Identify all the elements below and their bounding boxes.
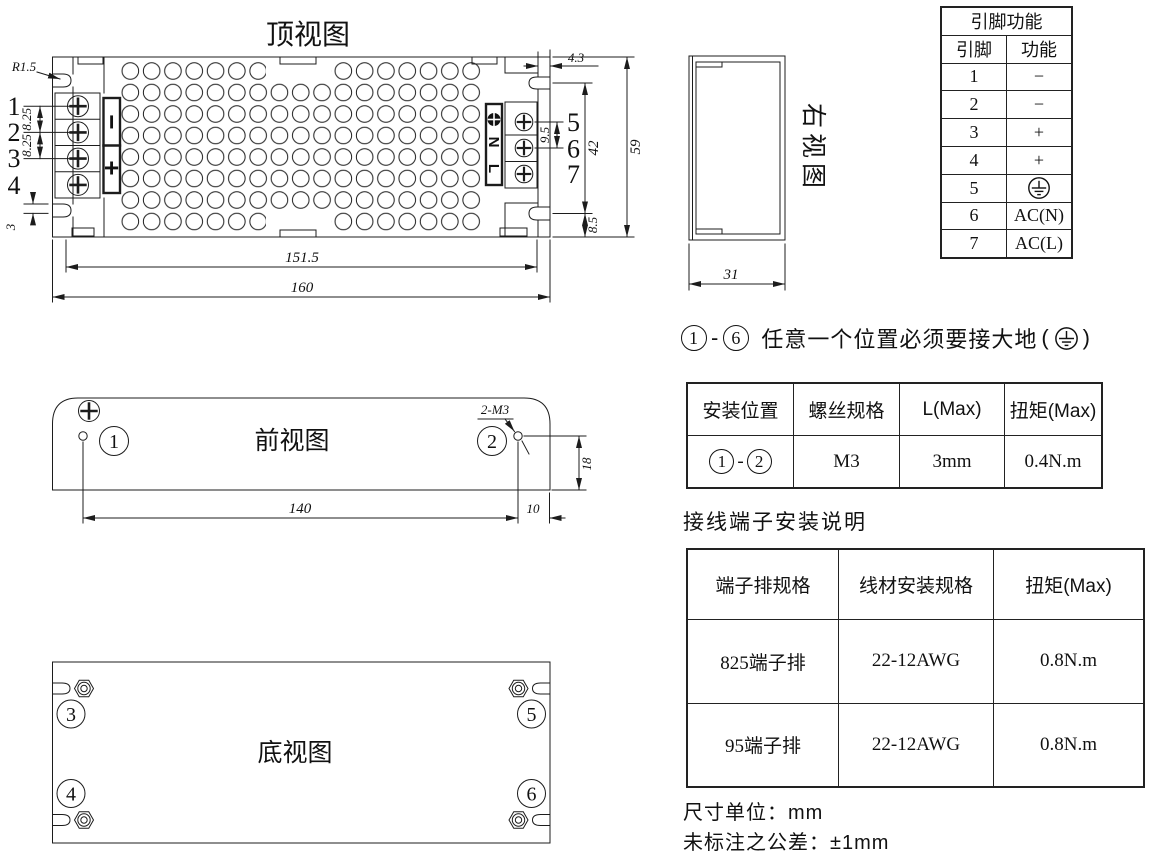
table-row: 1− [941,63,1072,91]
table-row: 95端子排 22-12AWG 0.8N.m [687,703,1144,787]
screw-icon [68,148,89,169]
dimension-31: 31 [689,244,785,290]
circled-number-6: 6 [723,325,749,351]
screw-icon [515,139,533,157]
table-row: 4+ [941,146,1072,174]
circled-number-2: 2 [747,449,772,474]
polarity-minus-label: − [97,114,127,129]
note-paren-close: ) [1083,325,1091,351]
engineering-drawing-sheet: 顶视图 [0,0,1162,862]
svg-text:8.5: 8.5 [585,216,600,233]
front-view-title: 前视图 [254,427,329,455]
ac-neutral-label: N [485,137,502,148]
svg-text:160: 160 [291,280,314,296]
tolerance-note: 未标注之公差：±1mm [683,826,889,855]
callout-2: 2 [478,427,507,456]
note-text: 任意一个位置必须要接大地 [761,322,1037,354]
svg-text:8.25: 8.25 [19,134,34,157]
screw-icon [68,96,89,117]
hex-nut-icon [75,680,94,696]
ground-requirement-note: 1 - 6 任意一个位置必须要接大地 ( ) [681,322,1091,354]
pin-table-title: 引脚功能 [941,7,1072,35]
screw-icon [68,122,89,143]
svg-text:42: 42 [586,140,602,156]
circled-number-1: 1 [681,325,707,351]
table-row: 825端子排 22-12AWG 0.8N.m [687,619,1144,703]
table-row: 6AC(N) [941,202,1072,230]
terminal-5-label: 5 [567,108,580,137]
callout-4: 4 [57,780,85,808]
terminal-4-label: 4 [8,171,21,200]
right-view-drawing: 右视图 31 [655,0,840,310]
ac-terminal-block: N L [485,102,537,188]
dc-terminal-block: − + [55,93,127,198]
front-view-drawing: 1 前视图 2 2-M3 18 140 10 [0,370,665,535]
earth-ground-icon [488,113,501,126]
earth-ground-icon [1027,176,1051,200]
svg-text:3: 3 [3,223,18,231]
terminal-7-label: 7 [567,160,580,189]
hex-nut-icon [509,680,528,696]
hex-nut-icon [75,812,94,828]
table-row: 5 [941,174,1072,202]
table-row: 3+ [941,119,1072,147]
dimension-18: 18 [524,436,594,490]
svg-text:140: 140 [289,501,312,517]
table-header-row: 安装位置 螺丝规格 L(Max) 扭矩(Max) [687,383,1102,436]
earth-ground-icon [1054,326,1079,351]
callout-6: 6 [518,780,546,808]
dimension-10: 10 [527,493,566,523]
polarity-plus-label: + [97,160,127,175]
top-view-title: 顶视图 [266,19,350,50]
mounting-slot [53,74,72,87]
pin-col-header: 引脚 [941,35,1007,63]
screw-icon [79,401,100,422]
terminal-section-title: 接线端子安装说明 [683,506,867,536]
svg-text:6: 6 [527,784,537,806]
svg-text:2-M3: 2-M3 [481,402,510,417]
svg-text:151.5: 151.5 [285,250,319,266]
svg-text:31: 31 [723,267,739,283]
unit-note: 尺寸单位：mm [683,796,823,825]
svg-text:R1.5: R1.5 [11,59,37,74]
hex-nut-icon [509,812,528,828]
table-row: 2− [941,91,1072,119]
callout-3: 3 [57,700,85,728]
dimension-151_5: 151.5 [66,240,537,272]
svg-text:8.25: 8.25 [19,107,34,130]
fn-col-header: 功能 [1007,35,1073,63]
right-view-title: 右视图 [799,103,827,193]
dimension-pitch-9_5: 9.5 [537,122,557,148]
svg-text:1: 1 [109,431,119,453]
svg-text:18: 18 [579,457,594,471]
note-dash: - [711,325,719,351]
svg-text:2: 2 [487,431,497,453]
table-header-row: 端子排规格 线材安装规格 扭矩(Max) [687,549,1144,619]
pin-function-table: 引脚功能 引脚 功能 1− 2− 3+ 4+ 5 [940,6,1073,259]
svg-text:59: 59 [628,139,644,155]
right-view-outline [689,56,785,240]
note-paren-open: ( [1041,325,1049,351]
screw-icon [515,113,533,131]
svg-text:3: 3 [66,704,76,726]
circled-number-1: 1 [709,449,734,474]
terminal-install-table: 端子排规格 线材安装规格 扭矩(Max) 825端子排 22-12AWG 0.8… [686,548,1145,788]
screw-icon [68,174,89,195]
table-row: 7AC(L) [941,230,1072,258]
dimension-step-4_3: 4.3 [524,50,598,70]
mounting-hole-1 [79,432,87,440]
svg-text:9.5: 9.5 [537,126,552,143]
screw-icon [515,165,533,183]
screw-install-table: 安装位置 螺丝规格 L(Max) 扭矩(Max) 1 - 2 M3 3mm 0.… [686,382,1103,489]
mounting-hole-2 [514,432,522,440]
callout-5: 5 [518,700,546,728]
bottom-view-drawing: 3 4 5 6 底视图 [0,640,665,862]
bottom-view-title: 底视图 [257,739,332,767]
table-row: 1 - 2 M3 3mm 0.4N.m [687,436,1102,489]
dimension-8_5: 8.5 [585,214,600,238]
svg-text:5: 5 [527,704,537,726]
svg-text:10: 10 [527,501,541,516]
vent-hole-grid [120,60,482,232]
svg-text:4: 4 [66,784,76,806]
callout-1: 1 [100,427,129,456]
top-view-drawing: 顶视图 [0,0,665,310]
ac-line-label: L [485,164,502,173]
